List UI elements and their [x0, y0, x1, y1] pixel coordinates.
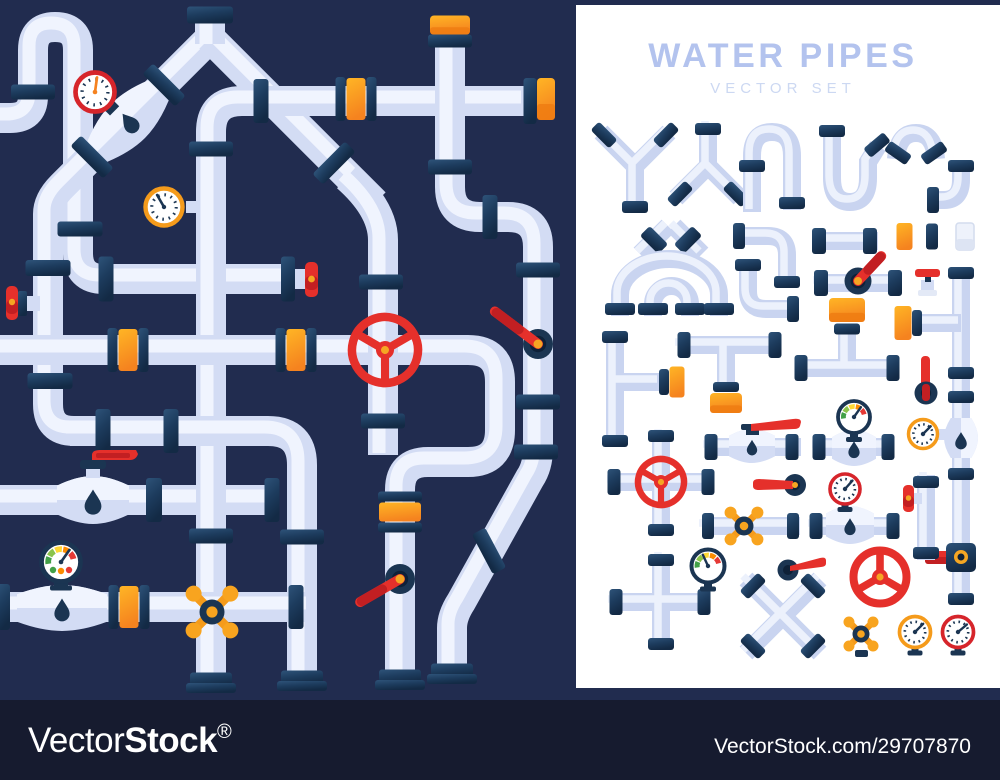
svg-text:VectorStock.com/29707870: VectorStock.com/29707870 [714, 735, 971, 758]
svg-text:VECTOR SET: VECTOR SET [710, 80, 856, 97]
svg-text:VectorStock®: VectorStock® [28, 721, 232, 760]
svg-text:WATER PIPES: WATER PIPES [648, 37, 917, 75]
